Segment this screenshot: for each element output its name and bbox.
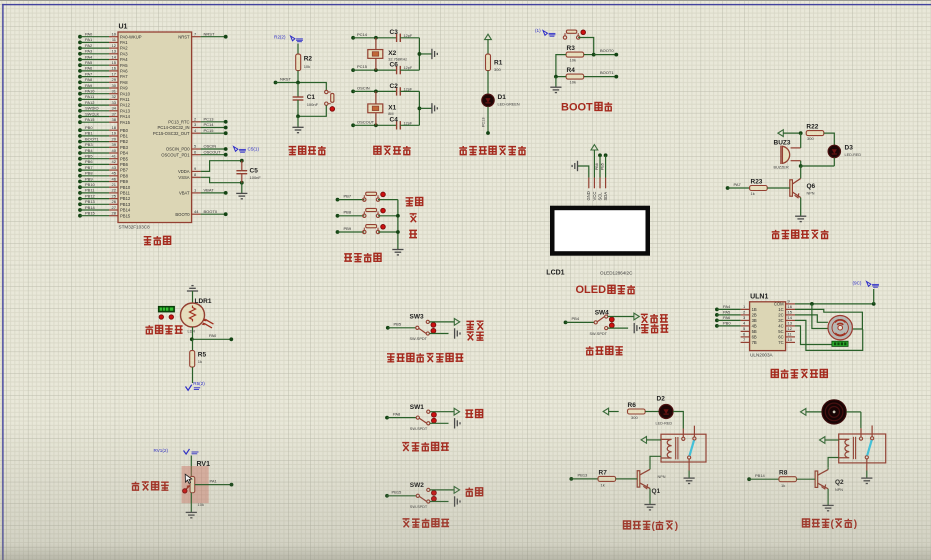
svg-text:OSCOUT_PD1: OSCOUT_PD1 <box>161 152 190 157</box>
svg-text:PA8: PA8 <box>85 77 93 82</box>
svg-text:PB3: PB3 <box>120 145 129 150</box>
svg-text:PA11: PA11 <box>85 94 95 99</box>
svg-text:43: 43 <box>112 165 117 170</box>
svg-text:LED-RED: LED-RED <box>656 422 673 426</box>
svg-text:27: 27 <box>112 205 117 210</box>
svg-text:): ) <box>675 521 678 532</box>
svg-text:PB12: PB12 <box>120 196 131 201</box>
svg-text:PA13: PA13 <box>120 108 131 113</box>
svg-text:C5(1): C5(1) <box>248 147 260 152</box>
svg-text:PB15: PB15 <box>85 211 96 216</box>
svg-text:SW1: SW1 <box>410 404 424 411</box>
svg-text:PB8: PB8 <box>344 210 352 215</box>
svg-text:Q2: Q2 <box>835 479 844 486</box>
svg-text:RV1(2): RV1(2) <box>154 448 169 453</box>
svg-text:PA7: PA7 <box>85 71 93 76</box>
svg-text:PC15: PC15 <box>204 128 215 133</box>
svg-text:BUZ3: BUZ3 <box>774 139 791 146</box>
svg-text:PB14: PB14 <box>85 205 96 210</box>
svg-text:LDR1: LDR1 <box>195 298 212 305</box>
svg-text:PA7: PA7 <box>734 182 742 187</box>
svg-text:10k: 10k <box>304 64 310 69</box>
svg-text:5C: 5C <box>778 329 783 334</box>
svg-text:C3: C3 <box>390 29 399 36</box>
svg-text:PB4: PB4 <box>85 148 93 153</box>
svg-text:SDA: SDA <box>603 192 608 201</box>
svg-text:4C: 4C <box>778 324 783 329</box>
svg-text:16: 16 <box>112 66 117 71</box>
svg-text:OSCOUT: OSCOUT <box>357 119 375 124</box>
svg-text:17: 17 <box>112 71 117 76</box>
svg-text:1k: 1k <box>198 359 202 364</box>
svg-text:BOOT1: BOOT1 <box>85 136 99 141</box>
svg-text:PA3: PA3 <box>85 49 93 54</box>
svg-text:BOOT0: BOOT0 <box>175 212 190 217</box>
svg-text:PB0: PB0 <box>723 321 731 326</box>
svg-text:PB14: PB14 <box>120 208 131 213</box>
svg-text:45: 45 <box>112 171 117 176</box>
svg-text:PB7: PB7 <box>85 165 93 170</box>
svg-text:LDR: LDR <box>188 330 196 334</box>
svg-text:PB6: PB6 <box>85 159 93 164</box>
svg-text:8M: 8M <box>388 112 393 116</box>
svg-text:ULN1: ULN1 <box>750 294 768 301</box>
svg-text:19: 19 <box>112 131 117 136</box>
svg-text:12pF: 12pF <box>404 121 413 125</box>
svg-text:12: 12 <box>112 43 117 48</box>
svg-text:SW2: SW2 <box>410 482 424 489</box>
svg-text:PC13: PC13 <box>482 118 486 128</box>
svg-text:R8: R8 <box>779 470 788 477</box>
svg-text:PA6: PA6 <box>723 315 731 320</box>
svg-text:5B: 5B <box>752 329 757 334</box>
svg-text:12: 12 <box>788 326 793 331</box>
svg-text:PB3: PB3 <box>85 142 93 147</box>
svg-text:SW-SPDT: SW-SPDT <box>590 332 608 336</box>
svg-text:C6: C6 <box>390 62 399 69</box>
svg-text:PB1: PB1 <box>85 131 93 136</box>
svg-text:(1): (1) <box>535 28 541 33</box>
svg-text:PB10: PB10 <box>85 182 96 187</box>
svg-text:PB5: PB5 <box>601 163 605 170</box>
svg-text:Q6: Q6 <box>807 183 816 190</box>
svg-text:PA6: PA6 <box>85 66 93 71</box>
svg-text:PB5: PB5 <box>120 156 129 161</box>
svg-text:15: 15 <box>112 60 117 65</box>
svg-text:COM: COM <box>774 302 784 307</box>
svg-text:10k: 10k <box>198 502 204 507</box>
svg-text:300: 300 <box>807 136 814 141</box>
svg-text:PB0: PB0 <box>120 128 129 133</box>
svg-text:PA5: PA5 <box>723 310 731 315</box>
svg-text:C1: C1 <box>307 94 316 101</box>
svg-text:PB13: PB13 <box>85 199 96 204</box>
svg-text:C4: C4 <box>390 117 399 124</box>
svg-text:X2: X2 <box>388 50 396 57</box>
svg-text:SCL: SCL <box>597 192 602 201</box>
svg-text:PB11: PB11 <box>85 188 95 193</box>
svg-text:PA2: PA2 <box>120 46 128 51</box>
svg-text:R4: R4 <box>567 67 576 74</box>
svg-text:PA4: PA4 <box>120 57 128 62</box>
svg-text:PB13: PB13 <box>120 202 131 207</box>
svg-text:VBAT: VBAT <box>204 188 215 193</box>
svg-text:R1: R1 <box>494 60 503 67</box>
svg-text:PA10: PA10 <box>85 89 95 94</box>
svg-text:R22: R22 <box>806 123 818 130</box>
svg-text:1k: 1k <box>751 191 755 196</box>
svg-text:10: 10 <box>788 337 793 342</box>
svg-text:PA1: PA1 <box>210 478 218 483</box>
svg-text:PA8: PA8 <box>120 80 128 85</box>
svg-text:GND: GND <box>586 191 591 200</box>
svg-text:33: 33 <box>112 100 117 105</box>
svg-text:18: 18 <box>112 125 117 130</box>
svg-text:STM32F103C8: STM32F103C8 <box>119 224 151 229</box>
svg-text:38: 38 <box>112 117 117 122</box>
svg-text:R5(2): R5(2) <box>193 381 205 386</box>
svg-text:6C: 6C <box>778 335 783 340</box>
svg-text:PB9: PB9 <box>344 226 352 231</box>
svg-text:1B: 1B <box>752 307 757 312</box>
svg-text:7B: 7B <box>752 340 757 345</box>
svg-text:BOOT1: BOOT1 <box>600 70 614 75</box>
svg-text:3B: 3B <box>752 318 757 323</box>
svg-text:PA3: PA3 <box>120 51 128 56</box>
svg-text:30: 30 <box>112 83 117 88</box>
svg-text:10k: 10k <box>570 80 576 85</box>
svg-text:PB0: PB0 <box>85 125 93 130</box>
svg-text:PA0: PA0 <box>209 333 217 338</box>
svg-text:PA5: PA5 <box>85 60 93 65</box>
svg-text:PA1: PA1 <box>85 37 93 42</box>
svg-text:PC14-OSC32_IN: PC14-OSC32_IN <box>157 125 189 130</box>
svg-text:ULN2003A: ULN2003A <box>750 353 773 358</box>
svg-text:R7: R7 <box>599 469 608 476</box>
svg-text:BOOT0: BOOT0 <box>204 209 218 214</box>
svg-text:OSCIN: OSCIN <box>204 144 217 149</box>
svg-text:PA4: PA4 <box>85 54 93 59</box>
svg-text:4B: 4B <box>752 324 757 329</box>
svg-text:PB10: PB10 <box>120 185 131 190</box>
svg-text:PA5: PA5 <box>120 63 128 68</box>
svg-text:D3: D3 <box>845 145 854 152</box>
svg-text:VDDA: VDDA <box>178 169 190 174</box>
svg-text:PA0-WKUP: PA0-WKUP <box>120 34 142 39</box>
svg-text:15: 15 <box>788 310 793 315</box>
svg-text:PA4: PA4 <box>723 304 731 309</box>
svg-text:LED-RED: LED-RED <box>845 153 862 157</box>
svg-text:OLED: OLED <box>576 284 607 296</box>
svg-text:25: 25 <box>112 193 117 198</box>
svg-text:NRST: NRST <box>280 76 291 81</box>
svg-text:14: 14 <box>788 315 793 320</box>
svg-text:2C: 2C <box>778 313 783 318</box>
svg-text:20: 20 <box>112 136 117 141</box>
svg-text:PB6: PB6 <box>120 162 129 167</box>
svg-text:D2: D2 <box>657 396 666 403</box>
svg-text:PC15-OSC32_OUT: PC15-OSC32_OUT <box>153 131 190 136</box>
svg-text:10: 10 <box>112 32 117 37</box>
svg-text:100nF: 100nF <box>307 102 319 107</box>
svg-text:PB7: PB7 <box>344 193 352 198</box>
svg-text:BOOT: BOOT <box>561 102 593 114</box>
svg-text:SW-SPDT: SW-SPDT <box>410 505 428 509</box>
svg-text:(9C): (9C) <box>853 281 862 286</box>
svg-text:32: 32 <box>112 94 117 99</box>
svg-text:PB7: PB7 <box>120 168 129 173</box>
svg-text:PA15: PA15 <box>120 120 131 125</box>
svg-text:PB5: PB5 <box>85 154 93 159</box>
svg-text:OSCOUT: OSCOUT <box>204 149 222 154</box>
svg-text:PA14: PA14 <box>120 114 131 119</box>
svg-text:14: 14 <box>112 54 117 59</box>
svg-text:PA9: PA9 <box>85 83 93 88</box>
svg-text:R6: R6 <box>628 402 637 409</box>
svg-text:13: 13 <box>788 321 793 326</box>
svg-text:PA11: PA11 <box>120 97 130 102</box>
svg-text:PC14: PC14 <box>204 122 215 127</box>
svg-text:PB2: PB2 <box>120 139 129 144</box>
svg-text:OLED12864I2C: OLED12864I2C <box>600 271 633 276</box>
svg-text:PC13_RTC: PC13_RTC <box>168 119 189 124</box>
svg-text:SW3: SW3 <box>410 314 424 321</box>
svg-text:PB15: PB15 <box>392 490 403 495</box>
svg-text:37: 37 <box>112 111 117 116</box>
svg-text:X1: X1 <box>388 104 396 111</box>
svg-text:12pF: 12pF <box>404 66 413 70</box>
svg-text:C2: C2 <box>390 83 399 90</box>
svg-text:31: 31 <box>112 89 117 94</box>
svg-text:R5: R5 <box>198 352 207 359</box>
svg-text:SW-SPDT: SW-SPDT <box>410 427 428 431</box>
svg-text:29: 29 <box>112 77 117 82</box>
svg-text:12pF: 12pF <box>404 87 413 91</box>
svg-text:12pF: 12pF <box>404 34 413 38</box>
svg-text:2B: 2B <box>752 313 757 318</box>
svg-text:42: 42 <box>112 159 117 164</box>
svg-text:PC15: PC15 <box>357 64 368 69</box>
svg-text:PB5: PB5 <box>394 322 402 327</box>
svg-text:PB14: PB14 <box>755 473 766 478</box>
svg-text:PA0: PA0 <box>85 32 93 37</box>
svg-text:13: 13 <box>112 49 117 54</box>
svg-text:6B: 6B <box>752 335 757 340</box>
svg-text:PC13: PC13 <box>204 116 215 121</box>
svg-text:C5: C5 <box>250 168 259 175</box>
svg-text:PA9: PA9 <box>120 86 128 91</box>
svg-text:SWCLK: SWCLK <box>85 111 100 116</box>
svg-text:PB12: PB12 <box>85 193 96 198</box>
svg-text:VSSA: VSSA <box>178 175 189 180</box>
svg-text:PB4: PB4 <box>120 151 129 156</box>
svg-text:NRST: NRST <box>178 34 190 39</box>
svg-text:OSCIN_PD0: OSCIN_PD0 <box>166 147 190 152</box>
svg-text:PB13: PB13 <box>578 473 589 478</box>
svg-text:PB11: PB11 <box>120 191 131 196</box>
svg-text:1C: 1C <box>778 307 783 312</box>
svg-text:300: 300 <box>631 415 638 420</box>
svg-text:41: 41 <box>112 154 117 159</box>
svg-text:PA12: PA12 <box>120 103 131 108</box>
svg-text:44: 44 <box>194 209 199 214</box>
svg-text:PC14: PC14 <box>357 32 368 37</box>
svg-text:300: 300 <box>494 67 501 72</box>
svg-text:28: 28 <box>112 211 117 216</box>
svg-text:PA10: PA10 <box>120 91 131 96</box>
svg-text:PB8: PB8 <box>85 171 93 176</box>
svg-text:PB9: PB9 <box>85 176 93 181</box>
svg-text:PA1: PA1 <box>120 40 128 45</box>
svg-text:PA15: PA15 <box>85 117 95 122</box>
svg-text:46: 46 <box>112 176 117 181</box>
svg-text:PA8: PA8 <box>393 411 401 416</box>
svg-text:40: 40 <box>112 148 117 153</box>
svg-text:16: 16 <box>788 304 793 309</box>
svg-text:10k: 10k <box>570 58 576 63</box>
svg-text:LCD1: LCD1 <box>546 270 564 277</box>
svg-text:39: 39 <box>112 142 117 147</box>
svg-text:Q1: Q1 <box>652 488 661 495</box>
svg-text:22: 22 <box>112 188 117 193</box>
svg-text:32.768KHz: 32.768KHz <box>388 58 407 62</box>
svg-text:LED-GREEN: LED-GREEN <box>498 103 520 107</box>
svg-text:VCC: VCC <box>592 192 597 201</box>
svg-text:): ) <box>854 519 857 530</box>
svg-text:R2(2): R2(2) <box>274 35 286 40</box>
svg-text:SWDIO: SWDIO <box>85 106 99 111</box>
svg-text:1k: 1k <box>781 483 785 488</box>
svg-text:100nF: 100nF <box>250 175 262 180</box>
svg-text:BUZZER: BUZZER <box>774 166 789 170</box>
svg-text:R3: R3 <box>567 45 576 52</box>
svg-text:26: 26 <box>112 199 117 204</box>
svg-text:D1: D1 <box>498 94 507 101</box>
svg-text:NPN: NPN <box>807 192 815 196</box>
svg-text:1k: 1k <box>601 483 605 488</box>
svg-text:21: 21 <box>112 182 117 187</box>
svg-text:7C: 7C <box>778 340 783 345</box>
svg-text:PA7: PA7 <box>120 74 128 79</box>
svg-text:NRST: NRST <box>204 31 215 36</box>
svg-text:VBAT: VBAT <box>179 191 190 196</box>
svg-text:PB4: PB4 <box>572 316 580 321</box>
svg-text:R23: R23 <box>751 179 763 186</box>
svg-text:OSCIN: OSCIN <box>357 85 370 90</box>
svg-text:NPN: NPN <box>658 475 666 479</box>
svg-text:PB9: PB9 <box>120 179 129 184</box>
svg-text:34: 34 <box>112 106 117 111</box>
svg-text:SW-SPDT: SW-SPDT <box>410 337 428 341</box>
svg-text:PA2: PA2 <box>85 43 93 48</box>
svg-text:3C: 3C <box>778 318 783 323</box>
svg-text:PB15: PB15 <box>120 213 131 218</box>
svg-text:PB6: PB6 <box>595 163 599 170</box>
svg-text:PA12: PA12 <box>85 100 95 105</box>
svg-text:PA6: PA6 <box>120 69 128 74</box>
svg-text:NPN: NPN <box>835 488 843 492</box>
svg-text:R2: R2 <box>304 56 313 63</box>
svg-text:U1: U1 <box>119 24 128 31</box>
svg-text:BOOT0: BOOT0 <box>600 48 614 53</box>
svg-text:PB1: PB1 <box>120 134 129 139</box>
svg-text:PB8: PB8 <box>120 173 129 178</box>
